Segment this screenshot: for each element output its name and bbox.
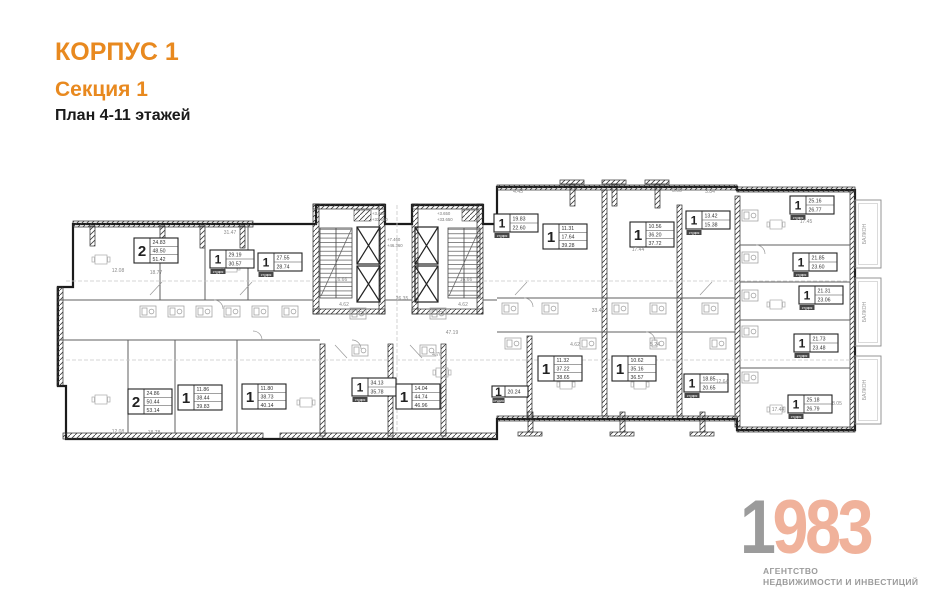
level-mark: +3.650	[372, 211, 386, 216]
apartment-area: 34.13	[371, 381, 384, 387]
apartment-stamp: 120.24студия	[492, 385, 528, 403]
apartment-sublabel: студия	[791, 415, 802, 419]
apartment-sublabel: студия	[261, 273, 272, 277]
dimension-label: 17.45	[800, 219, 813, 225]
dimension-label: 3.08	[672, 188, 682, 194]
apartment-stamp: 224.8650.4453.14	[128, 389, 172, 414]
dimension-label: 47.19	[446, 330, 459, 336]
apartment-area: 26.79	[807, 407, 820, 413]
apartment-type: 1	[263, 256, 270, 270]
logo-agency-line2: НЕДВИЖИМОСТИ И ИНВЕСТИЦИЙ	[763, 577, 920, 588]
balcony-label: БАЛКОН	[862, 223, 868, 244]
apartment-area: 23.48	[813, 346, 826, 352]
dimension-label: 16.66	[335, 277, 348, 283]
apartment-area: 53.14	[147, 408, 160, 414]
dimension-label: 4.62	[570, 342, 580, 348]
apartment-stamp: 110.6235.1636.57	[612, 356, 656, 381]
apartment-area: 18.85	[703, 377, 716, 383]
apartment-type: 1	[616, 361, 624, 378]
balcony: БАЛКОН	[855, 356, 881, 424]
apartment-sublabel: студия	[687, 394, 698, 398]
balcony: БАЛКОН	[855, 278, 881, 346]
dimension-label: 18.78	[148, 430, 161, 436]
apartment-type: 1	[215, 253, 222, 267]
logo-year: 1983	[740, 496, 893, 560]
apartment-area: 19.83	[513, 217, 526, 223]
apartment-area: 23.06	[818, 298, 831, 304]
apartment-sublabel: студия	[802, 306, 813, 310]
dimension-label: 17.44	[632, 247, 645, 253]
dimension-label: 26.35	[396, 296, 409, 302]
dimension-label: 12.08	[112, 268, 125, 274]
dimension-label: 33.47	[592, 308, 605, 314]
dimension-label: 18.77	[150, 270, 163, 276]
dimension-label: 4.62	[458, 302, 468, 308]
apartment-area: 38.65	[557, 375, 570, 381]
apartment-area: 21.73	[813, 337, 826, 343]
logo-year-accent: 983	[773, 485, 871, 570]
apartment-area: 44.74	[415, 395, 428, 401]
level-mark: +33.650	[372, 217, 388, 222]
apartment-area: 20.24	[508, 390, 521, 396]
dimension-label: 4.45	[513, 189, 523, 195]
level-mark: +3.650	[437, 211, 451, 216]
apartment-stamp: 224.8348.5051.42	[134, 238, 178, 263]
level-mark: +46.360	[387, 243, 403, 248]
apartment-type: 1	[795, 199, 802, 213]
outer-walls	[57, 180, 855, 439]
apartment-area: 21.85	[812, 256, 825, 262]
apartment-area: 15.38	[705, 223, 718, 229]
apartment-type: 1	[634, 227, 642, 244]
apartment-area: 30.57	[229, 262, 242, 268]
apartment-type: 2	[132, 394, 140, 411]
apartment-type: 1	[799, 337, 806, 351]
dimension-label: 4.70	[432, 352, 442, 358]
apartment-area: 25.18	[807, 398, 820, 404]
apartment-type: 1	[798, 256, 805, 270]
apartment-stamp: 114.0444.7446.96	[396, 384, 440, 409]
apartment-area: 35.78	[371, 390, 384, 396]
apartment-area: 27.55	[277, 256, 290, 262]
dimension-label: 8.05	[832, 401, 842, 407]
apartment-stamp: 111.8038.7340.14	[242, 384, 286, 409]
logo-year-gray: 1	[740, 485, 773, 570]
apartment-area: 22.60	[513, 226, 526, 232]
apartment-stamp: 111.3237.2238.65	[538, 356, 582, 381]
apartment-area: 23.60	[812, 265, 825, 271]
apartment-area: 36.20	[649, 233, 662, 239]
apartment-area: 39.83	[197, 404, 210, 410]
apartment-stamp: 113.4215.38студия	[686, 211, 730, 235]
apartment-sublabel: студия	[497, 234, 508, 238]
apartment-area: 29.19	[229, 253, 242, 259]
apartment-type: 1	[495, 385, 502, 399]
apartment-area: 10.62	[631, 358, 644, 364]
apartment-sublabel: студия	[493, 399, 504, 403]
level-mark: +7.460	[387, 237, 401, 242]
apartment-area: 11.31	[562, 226, 575, 232]
apartment-stamp: 125.1826.79студия	[788, 395, 832, 419]
apartment-stamp: 121.3123.06студия	[799, 286, 843, 310]
apartment-area: 36.57	[631, 375, 644, 381]
balcony: БАЛКОН	[855, 200, 881, 268]
apartment-sublabel: студия	[355, 398, 366, 402]
apartment-type: 2	[138, 243, 146, 260]
apartment-type: 1	[499, 217, 506, 231]
apartment-area: 35.16	[631, 367, 644, 373]
apartment-sublabel: студия	[796, 273, 807, 277]
apartment-type: 1	[182, 390, 190, 407]
apartment-type: 1	[804, 289, 811, 303]
dimension-label: 12.64	[716, 379, 729, 385]
apartment-area: 37.72	[649, 241, 662, 247]
apartment-sublabel: студия	[213, 270, 224, 274]
apartment-area: 11.86	[197, 387, 210, 393]
apartment-area: 25.16	[809, 199, 822, 205]
apartment-stamp: 110.5636.2037.72	[630, 222, 674, 247]
apartment-area: 39.28	[562, 243, 575, 249]
apartment-type: 1	[691, 214, 698, 228]
balcony-label: БАЛКОН	[862, 379, 868, 400]
apartment-type: 1	[357, 381, 364, 395]
level-mark: +33.650	[437, 217, 453, 222]
apartment-area: 20.65	[703, 386, 716, 392]
apartment-area: 17.64	[562, 235, 575, 241]
apartment-type: 1	[400, 389, 408, 406]
apartment-stamp: 125.1626.77студия	[790, 196, 834, 220]
apartment-area: 13.42	[705, 214, 718, 220]
apartment-stamp: 121.7323.48студия	[794, 334, 838, 358]
apartment-type: 1	[246, 389, 254, 406]
apartment-sublabel: студия	[797, 354, 808, 358]
apartment-area: 21.31	[818, 289, 831, 295]
hatched-wall-segments	[57, 180, 855, 439]
apartment-stamp: 127.5528.74студия	[258, 253, 302, 277]
apartment-area: 24.86	[147, 391, 160, 397]
apartment-area: 38.73	[261, 395, 274, 401]
apartment-area: 51.42	[153, 257, 166, 263]
dimension-label: 31.47	[224, 230, 237, 236]
page-root: КОРПУС 1 Секция 1 План 4-11 этажей	[0, 0, 941, 600]
dimension-label: 4.62	[339, 302, 349, 308]
agency-logo: 1983 АГЕНТСТВО НЕДВИЖИМОСТИ И ИНВЕСТИЦИЙ	[740, 496, 920, 588]
apartment-type: 1	[542, 361, 550, 378]
apartment-area: 11.32	[557, 358, 570, 364]
apartment-stamp: 129.1930.57студия	[210, 250, 254, 274]
apartment-area: 11.80	[261, 386, 274, 392]
dimension-label: 5.24	[650, 342, 660, 348]
apartment-stamp: 111.8638.4439.83	[178, 385, 222, 410]
apartment-stamp: 121.8523.60студия	[793, 253, 837, 277]
apartment-area: 40.14	[261, 403, 274, 409]
apartment-area: 26.77	[809, 208, 822, 214]
apartment-stamp: 119.8322.60студия	[494, 214, 538, 238]
apartment-area: 50.44	[147, 400, 160, 406]
apartment-area: 28.74	[277, 265, 290, 271]
dimension-label: 3.84	[705, 189, 715, 195]
vent-shaft	[462, 210, 479, 221]
balcony-label: БАЛКОН	[862, 301, 868, 322]
apartment-stamp: 118.8520.65студия	[684, 374, 728, 398]
apartment-area: 14.04	[415, 386, 428, 392]
apartment-sublabel: студия	[689, 231, 700, 235]
apartment-area: 38.44	[197, 396, 210, 402]
apartment-stamp: 111.3117.6439.28	[543, 224, 587, 249]
apartment-area: 24.83	[153, 240, 166, 246]
dimension-label: 12.08	[112, 429, 125, 435]
vent-shaft	[354, 210, 371, 221]
apartment-area: 10.56	[649, 224, 662, 230]
apartment-area: 37.22	[557, 367, 570, 373]
apartment-area: 46.96	[415, 403, 428, 409]
dimension-label: 16.66	[460, 277, 473, 283]
apartment-area: 48.50	[153, 249, 166, 255]
dimension-label: 17.44	[772, 407, 785, 413]
apartment-type: 1	[793, 398, 800, 412]
apartment-type: 1	[547, 229, 555, 246]
apartment-type: 1	[689, 377, 696, 391]
